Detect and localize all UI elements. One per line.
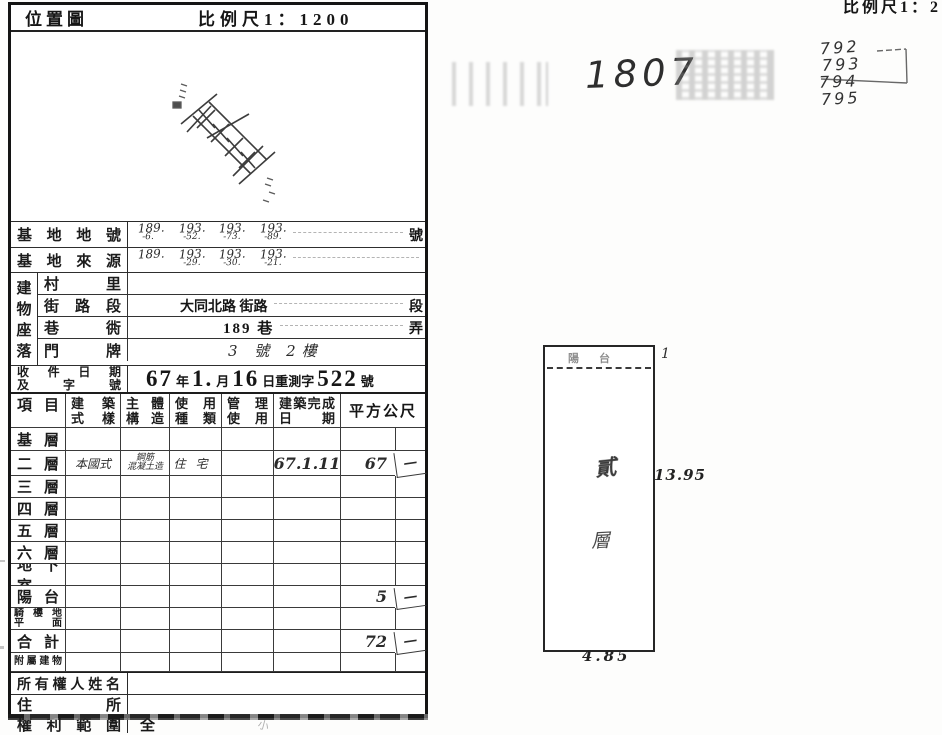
plan-balcony-depth: 1 [661,346,670,362]
village-row: 村里 [38,273,425,295]
col-management: 管理使用 [221,394,273,428]
site-lot-row: 基地地號 189.-6. 193.-52. 193.-73. 193.-89. … [11,222,425,248]
site-lot-label: 基地地號 [11,224,127,245]
plan-width-dim: 4.85 [582,647,631,665]
site-source-numbers: 189. 193.-29. 193.-30. 193.-21. [138,250,287,268]
row-sixth-floor-label: 六層 [11,542,65,563]
receipt-row: 收件日期 及字號 67年1.月16日重測字522號 [11,366,425,394]
ruled-line [293,232,403,233]
site-lot-label-cell: 基地地號 [11,222,128,247]
col-style: 建築式樣 [65,394,120,428]
faint-stamp-right [676,50,774,100]
lane-row: 巷衖 189 巷 弄 [38,317,425,339]
form-header-row: 位置圖 比例尺1：1200 [11,5,425,32]
faint-stamp-left [452,62,548,106]
plan-balcony-dashed-line [547,367,651,369]
plan-floor-char-1: 貳 [593,451,617,483]
row-total-label: 合計 [11,631,65,652]
balcony-area: 5 [340,586,395,608]
location-map-area [11,32,425,222]
row-balcony-label: 陽台 [11,586,65,607]
row-basement-label: 地下室 [11,564,65,586]
survey-form: 位置圖 比例尺1：1200 [8,2,428,718]
second-floor-use: 住宅 [169,451,221,476]
lane-value: 189 巷 [223,317,274,338]
scan-artifact [0,560,5,562]
site-source-label-cell: 基地來源 [11,248,128,272]
lane-label: 巷衖 [38,317,127,338]
owner-name-row: 所有權人姓名 [11,672,425,695]
row-second-floor-label: 二層 [11,453,65,474]
location-map-label: 位置圖 [25,5,88,30]
col-square-meters: 平方公尺 [340,394,425,428]
floor-plan-rect: 陽台 [543,345,655,652]
street-suffix: 段 [409,296,423,316]
map-scale-label: 比例尺1：1200 [198,5,354,30]
scanned-survey-document: { "header": { "location_map": "位置圖", "sc… [0,0,942,720]
ruled-line [274,303,404,304]
scan-artifact [0,646,4,649]
plan-floor-char-2: 層 [590,526,610,554]
receipt-doc-number: 522 [317,366,358,391]
receipt-day: 16 [232,366,259,391]
balcony-area-dash: — [394,584,427,610]
door-number-value: 3 號 2樓 [228,340,323,361]
parcel-sketch [151,72,321,222]
clipped-next-row [8,714,428,720]
village-label: 村里 [38,273,127,294]
row-fourth-floor-label: 四層 [11,498,65,519]
site-lot-numbers: 189.-6. 193.-52. 193.-73. 193.-89. [138,224,287,242]
ruled-line [293,257,419,258]
col-item: 項目 [11,394,65,415]
second-floor-date: 67.1.11 [273,451,340,476]
owner-name-label: 所有權人姓名 [11,674,127,694]
row-ground-label: 基層 [11,429,65,450]
corner-scale-label: 比例尺1：2 [843,0,941,17]
receipt-value: 67年1.月16日重測字522號 [128,366,425,392]
street-label: 街路段 [38,295,127,316]
plan-height-dim: 13.95 [654,466,706,484]
site-source-label: 基地來源 [11,250,127,271]
col-structure: 主體構造 [120,394,169,428]
second-floor-area: 67 [340,451,395,476]
second-floor-area-dash: — [393,449,426,478]
site-lot-suffix: 號 [409,225,423,245]
building-location-block: 建物座落 村里 街路段 大同北路 街路 段 巷衖 189 巷 弄 [11,273,425,366]
pencil-bracket [815,35,935,115]
second-floor-structure: 鋼筋混凝土造 [120,451,169,476]
total-area: 72 [340,630,395,653]
floor-table: 項目 建築式樣 主體構造 使用種類 管理使用 建築完成日期 平方公尺 基層 二層… [11,394,425,672]
col-use-type: 使用種類 [169,394,221,428]
door-number-row: 門牌 3 號 2樓 [38,339,425,361]
plan-balcony-label: 陽台 [545,350,653,366]
row-third-floor-label: 三層 [11,476,65,497]
receipt-year: 67 [146,366,173,391]
receipt-label-cell: 收件日期 及字號 [11,366,128,392]
lane-suffix: 弄 [409,318,423,338]
total-area-dash: — [394,628,427,655]
site-lot-value: 189.-6. 193.-52. 193.-73. 193.-89. 號 [128,222,425,247]
second-floor-style: 本國式 [65,451,120,476]
door-number-label: 門牌 [38,340,127,361]
site-source-value: 189. 193.-29. 193.-30. 193.-21. [128,248,425,272]
receipt-month: 1. [192,366,213,391]
row-arcade-label: 騎樓地平面 [11,608,65,630]
receipt-label: 收件日期 及字號 [11,366,127,392]
row-fifth-floor-label: 五層 [11,520,65,541]
address-label: 住所 [11,694,127,715]
building-location-vertical-label: 建物座落 [11,273,38,365]
street-row: 街路段 大同北路 街路 段 [38,295,425,317]
col-completion-date: 建築完成日期 [273,394,340,428]
address-row: 住所 [11,695,425,715]
site-source-row: 基地來源 189. 193.-29. 193.-30. 193.-21. [11,248,425,273]
row-attached-building-label: 附屬建物 [11,657,65,667]
ruled-line [280,325,403,326]
street-value: 大同北路 街路 [180,296,268,316]
